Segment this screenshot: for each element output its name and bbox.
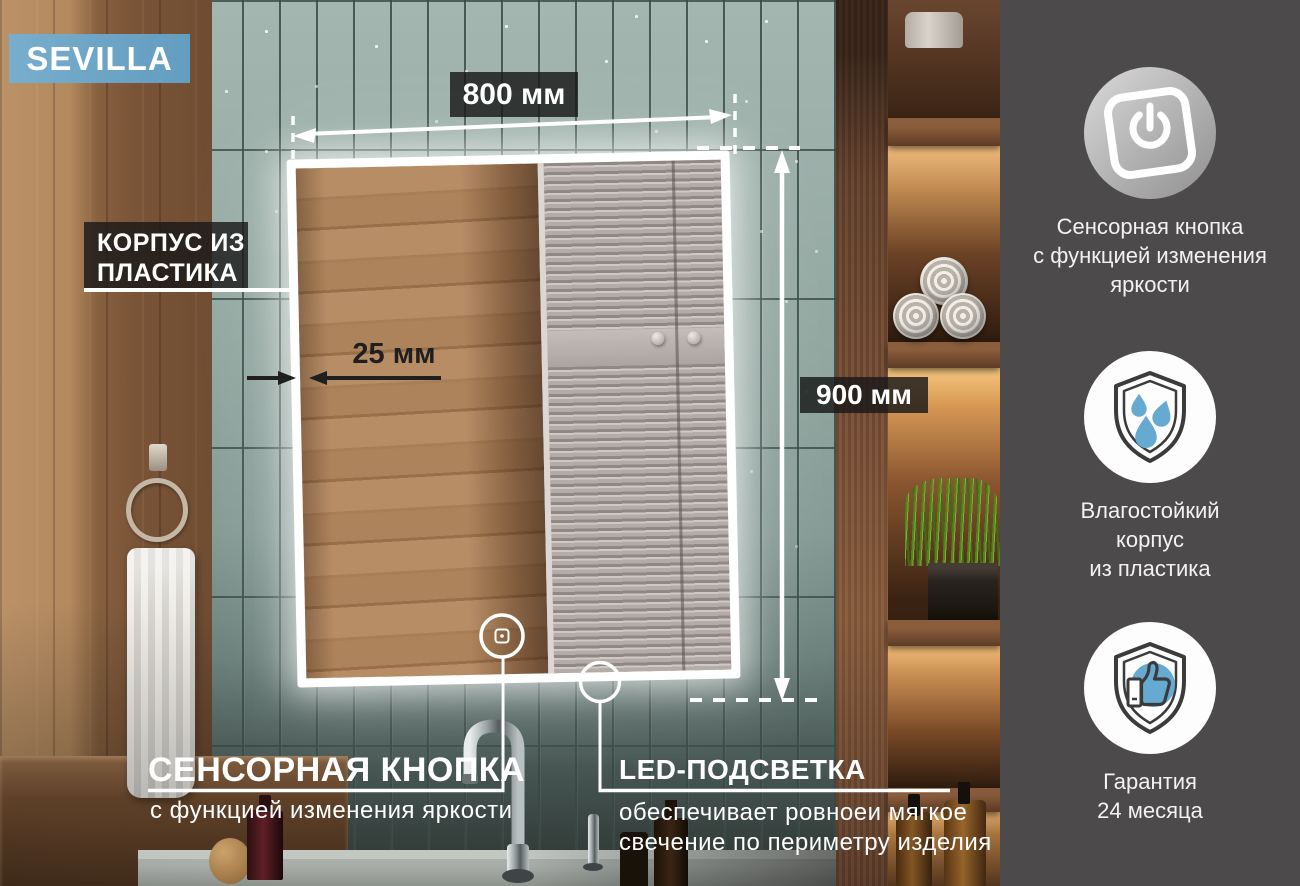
height-dimension-label: 900 мм <box>800 377 928 413</box>
caption-line: Гарантия <box>1097 767 1203 796</box>
touch-sensor-dot <box>500 634 504 638</box>
icon-circle <box>1084 67 1216 199</box>
warranty-thumbs-up-icon <box>1083 621 1217 755</box>
arrowhead-up-icon <box>774 150 790 173</box>
frame-dimension-label: 25 мм <box>338 338 450 371</box>
thumb-cuff <box>1128 679 1141 706</box>
arrowhead-left-icon <box>293 128 316 143</box>
caption-line: Сенсорная кнопка <box>1033 212 1267 241</box>
body-material-callout: КОРПУС ИЗ ПЛАСТИКА <box>84 222 248 289</box>
feature-caption: Сенсорная кнопка с функцией изменения яр… <box>1033 212 1267 299</box>
body-material-pointer-line <box>84 288 292 292</box>
arrowhead-down-icon <box>774 678 790 701</box>
touch-button-callout-subtitle: с функцией изменения яркости <box>150 797 513 825</box>
led-callout-subtitle-line2: свечение по периметру изделия <box>619 829 992 857</box>
caption-line: 24 месяца <box>1097 796 1203 825</box>
caption-line: яркости <box>1033 270 1267 299</box>
feature-touch-button: Сенсорная кнопка с функцией изменения яр… <box>1000 66 1300 299</box>
width-dimension-label: 800 мм <box>450 72 578 117</box>
touch-power-button-icon <box>1083 66 1217 200</box>
led-callout-title: LED-ПОДСВЕТКА <box>619 754 866 786</box>
features-sidebar: Сенсорная кнопка с функцией изменения яр… <box>1000 0 1300 886</box>
led-callout-subtitle-line1: обеспечивает ровноеи мягкое <box>619 799 967 827</box>
feature-moisture-resistant: Влагостойкий корпус из пластика <box>1000 350 1300 583</box>
caption-line: корпус <box>1080 525 1219 554</box>
arrowhead-left-icon <box>309 371 327 385</box>
arrowhead-right-icon <box>278 371 296 385</box>
led-edge-marker <box>581 663 620 702</box>
caption-line: Влагостойкий <box>1080 496 1219 525</box>
touch-button-callout-title: СЕНСОРНАЯ КНОПКА <box>148 751 525 790</box>
caption-line: с функцией изменения <box>1033 241 1267 270</box>
body-material-line1: КОРПУС ИЗ <box>97 228 248 258</box>
width-arrow-line <box>305 117 720 134</box>
icon-circle <box>1084 351 1216 483</box>
frame-width-arrows <box>247 371 441 385</box>
body-material-line2: ПЛАСТИКА <box>97 258 248 288</box>
feature-warranty: Гарантия 24 месяца <box>1000 621 1300 825</box>
feature-caption: Влагостойкий корпус из пластика <box>1080 496 1219 583</box>
moisture-shield-icon <box>1083 350 1217 484</box>
feature-caption: Гарантия 24 месяца <box>1097 767 1203 825</box>
arrowhead-right-icon <box>709 109 732 124</box>
product-infographic: SEVILLA 800 мм 900 мм 25 мм КОРПУС ИЗ ПЛ… <box>0 0 1300 886</box>
white-dimension-lines <box>148 94 950 791</box>
model-name-badge: SEVILLA <box>9 34 190 83</box>
caption-line: из пластика <box>1080 554 1219 583</box>
